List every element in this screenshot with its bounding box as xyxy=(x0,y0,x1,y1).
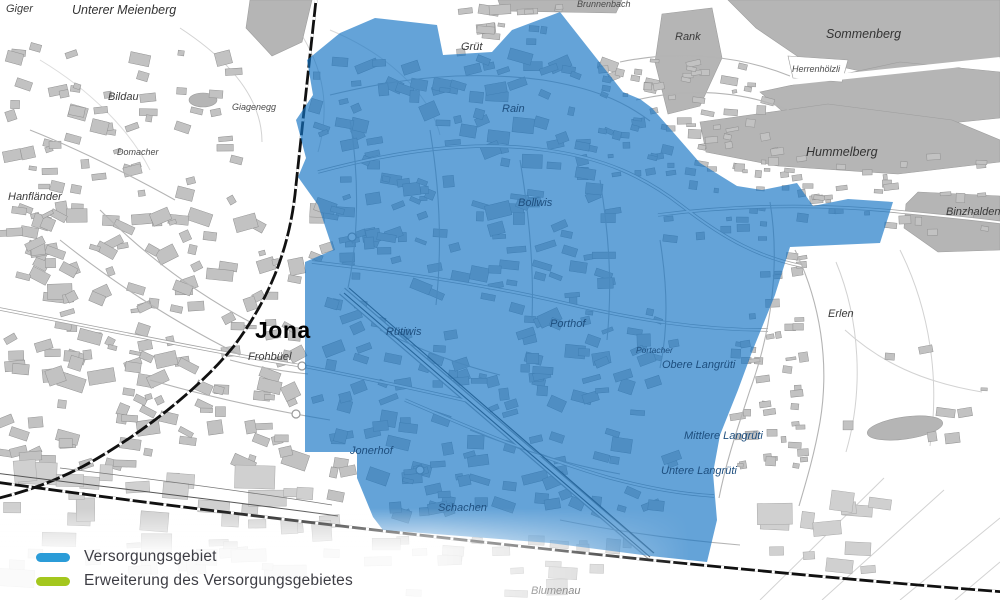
building xyxy=(788,442,801,448)
building xyxy=(945,432,961,444)
building xyxy=(687,124,696,127)
map-label-jona: Jona xyxy=(255,317,311,343)
building xyxy=(254,423,272,430)
map-label-portacher: Portacher xyxy=(636,345,674,355)
building xyxy=(885,353,895,360)
erweiterung-label: Erweiterung des Versorgungsgebietes xyxy=(84,572,353,590)
building xyxy=(125,361,141,373)
building xyxy=(825,558,853,574)
building xyxy=(781,436,786,442)
legend: Versorgungsgebiet Erweiterung des Versor… xyxy=(36,548,353,590)
building xyxy=(489,4,511,15)
building xyxy=(759,401,771,408)
building xyxy=(59,439,72,448)
building xyxy=(803,551,815,559)
building xyxy=(723,134,731,140)
building xyxy=(688,129,701,139)
building xyxy=(766,456,777,466)
building xyxy=(524,9,533,14)
building xyxy=(218,136,232,142)
building xyxy=(957,407,972,418)
building xyxy=(644,83,652,90)
building xyxy=(215,407,225,417)
building xyxy=(826,199,831,203)
building xyxy=(114,460,137,467)
building xyxy=(511,568,524,575)
building xyxy=(976,160,987,164)
building xyxy=(829,490,854,512)
map-label-obere-langr-ti: Obere Langrüti xyxy=(662,359,736,371)
map-label-erlen: Erlen xyxy=(828,308,854,320)
building xyxy=(217,144,233,151)
building xyxy=(545,561,561,567)
building xyxy=(477,26,495,35)
building xyxy=(179,230,192,243)
building xyxy=(190,107,203,115)
map-label-schachen: Schachen xyxy=(438,502,487,514)
building xyxy=(234,465,275,489)
building xyxy=(653,82,665,90)
building xyxy=(836,164,845,170)
building xyxy=(296,487,313,500)
building xyxy=(784,168,794,173)
building xyxy=(725,141,733,149)
building xyxy=(782,365,792,373)
building xyxy=(6,228,22,237)
building xyxy=(275,435,289,442)
building xyxy=(121,415,137,423)
map-label-untere-langr-ti: Untere Langrüti xyxy=(661,465,737,477)
building xyxy=(732,89,737,93)
building xyxy=(12,363,29,375)
building xyxy=(329,467,338,478)
building xyxy=(140,93,156,103)
building xyxy=(207,420,223,436)
building xyxy=(16,272,31,281)
building xyxy=(978,193,986,197)
building xyxy=(763,408,776,415)
building xyxy=(748,83,756,87)
map-label-sommenberg: Sommenberg xyxy=(826,27,901,41)
map-canvas[interactable]: GigerUnterer MeienbergBildauGiageneggDom… xyxy=(0,0,1000,600)
building xyxy=(188,301,205,311)
building xyxy=(800,457,808,462)
map-label-hanfl-nder: Hanfländer xyxy=(8,191,63,203)
building xyxy=(191,261,203,272)
building xyxy=(981,226,989,232)
map-label-unterer-meienberg: Unterer Meienberg xyxy=(72,3,176,17)
map-label-bollwis: Bollwis xyxy=(518,197,553,209)
building xyxy=(288,257,306,276)
building xyxy=(775,331,781,338)
building xyxy=(981,388,988,391)
building xyxy=(590,564,604,573)
building xyxy=(927,229,937,235)
building xyxy=(186,177,196,185)
building xyxy=(65,50,78,59)
building xyxy=(59,89,69,98)
building xyxy=(174,121,191,134)
building xyxy=(8,351,23,361)
building xyxy=(634,69,642,75)
building xyxy=(108,344,117,350)
building xyxy=(136,419,160,437)
building xyxy=(94,106,108,114)
map-label-binzhalden: Binzhalden xyxy=(946,206,1000,218)
building xyxy=(140,405,157,418)
building xyxy=(206,268,233,282)
building xyxy=(756,375,770,383)
building xyxy=(231,322,244,330)
map-label-rain: Rain xyxy=(502,103,525,115)
building xyxy=(412,548,427,556)
building xyxy=(187,207,213,227)
building xyxy=(372,538,400,550)
building xyxy=(936,407,956,418)
building xyxy=(233,213,258,233)
building xyxy=(744,86,752,92)
building xyxy=(940,192,951,196)
building xyxy=(650,59,659,63)
building xyxy=(175,186,194,201)
building xyxy=(245,420,257,434)
building xyxy=(90,119,109,136)
building xyxy=(145,393,153,400)
building xyxy=(861,565,876,574)
building xyxy=(927,431,937,442)
building xyxy=(327,490,345,503)
building xyxy=(749,358,760,363)
building xyxy=(713,125,720,130)
building xyxy=(81,159,90,168)
building xyxy=(0,568,35,587)
building xyxy=(757,105,766,114)
building xyxy=(738,63,748,70)
building xyxy=(705,136,718,143)
legend-item-versorgungsgebiet: Versorgungsgebiet xyxy=(36,548,353,566)
building xyxy=(83,350,92,360)
building xyxy=(505,590,528,597)
building xyxy=(214,50,232,67)
map-label-r-tiwis: Rütiwis xyxy=(386,326,422,338)
building xyxy=(803,184,813,189)
building xyxy=(631,75,640,82)
building xyxy=(555,4,563,9)
map-label-porthof: Porthof xyxy=(550,318,586,330)
building xyxy=(70,184,81,194)
building xyxy=(760,132,770,141)
building xyxy=(843,421,853,430)
building xyxy=(746,119,756,127)
building xyxy=(42,532,76,547)
building xyxy=(154,350,178,368)
building xyxy=(188,244,198,254)
building xyxy=(136,71,149,82)
building xyxy=(862,170,872,176)
building xyxy=(249,490,287,506)
building xyxy=(129,52,151,67)
versorgungsgebiet-swatch-icon xyxy=(36,553,70,562)
building xyxy=(29,166,37,171)
building xyxy=(200,408,212,413)
building xyxy=(498,23,505,27)
building xyxy=(770,547,784,556)
building xyxy=(227,195,237,205)
building xyxy=(2,148,22,162)
map-label-rank: Rank xyxy=(675,31,701,43)
versorgungsgebiet-label: Versorgungsgebiet xyxy=(84,548,217,566)
building xyxy=(28,416,43,428)
building xyxy=(797,448,808,456)
building xyxy=(28,266,50,285)
building xyxy=(66,209,87,223)
legend-item-erweiterung: Erweiterung des Versorgungsgebietes xyxy=(36,572,353,590)
building xyxy=(899,216,911,225)
building xyxy=(209,90,223,98)
map-label-bildau: Bildau xyxy=(108,91,139,103)
building xyxy=(60,308,75,316)
building xyxy=(900,161,907,168)
building xyxy=(45,258,55,267)
building xyxy=(761,160,766,164)
building xyxy=(795,317,804,321)
building xyxy=(137,301,152,313)
building xyxy=(956,193,965,203)
building xyxy=(724,109,738,116)
building xyxy=(874,189,883,193)
building xyxy=(442,545,464,556)
building xyxy=(798,352,808,363)
building xyxy=(144,448,153,456)
building xyxy=(77,328,102,345)
building xyxy=(743,170,748,173)
building xyxy=(162,482,188,500)
building xyxy=(92,173,107,180)
building xyxy=(15,78,33,92)
building xyxy=(701,110,715,117)
building xyxy=(800,511,815,529)
building xyxy=(76,498,95,521)
building xyxy=(11,100,20,108)
building xyxy=(755,170,762,178)
building xyxy=(836,185,848,191)
building xyxy=(123,388,135,396)
building xyxy=(915,217,922,225)
building xyxy=(252,433,270,447)
building xyxy=(743,409,750,416)
building xyxy=(406,589,422,596)
building xyxy=(13,459,37,482)
building xyxy=(458,8,473,15)
building xyxy=(730,412,746,421)
building xyxy=(138,339,153,351)
building xyxy=(280,382,300,402)
building xyxy=(248,520,266,529)
building xyxy=(4,502,21,512)
building xyxy=(792,174,802,181)
building xyxy=(138,190,145,197)
building xyxy=(786,357,796,361)
building xyxy=(87,368,115,386)
erweiterung-swatch-icon xyxy=(36,577,70,586)
map-label-jonerhof: Jonerhof xyxy=(349,445,394,457)
building xyxy=(146,115,153,122)
building xyxy=(45,349,61,357)
versorgungsgebiet-map[interactable]: GigerUnterer MeienbergBildauGiageneggDom… xyxy=(0,0,1000,600)
building xyxy=(225,68,242,76)
building xyxy=(146,369,169,388)
map-label-mittlere-langr-ti: Mittlere Langrüti xyxy=(684,430,763,442)
building xyxy=(793,324,804,331)
building xyxy=(927,153,941,160)
building xyxy=(766,334,774,340)
building xyxy=(29,42,42,52)
building xyxy=(790,389,803,397)
building xyxy=(791,403,799,410)
building xyxy=(668,95,675,100)
map-label-gr-t: Grüt xyxy=(461,41,483,53)
building xyxy=(768,157,778,165)
building xyxy=(203,231,217,241)
building xyxy=(720,75,738,85)
building xyxy=(737,463,743,467)
building xyxy=(57,400,66,409)
building xyxy=(492,547,510,556)
building xyxy=(767,429,777,436)
building xyxy=(796,425,805,429)
building xyxy=(757,503,792,525)
map-label-herrenh-lzli: Herrenhölzli xyxy=(792,64,841,74)
map-label-brunnenbach: Brunnenbach xyxy=(577,0,631,9)
map-label-giger: Giger xyxy=(6,3,34,15)
building xyxy=(264,394,274,400)
building xyxy=(764,168,770,171)
building xyxy=(364,557,391,567)
building xyxy=(883,174,888,180)
building xyxy=(288,275,302,284)
map-label-hummelberg: Hummelberg xyxy=(806,145,878,159)
building xyxy=(39,184,50,189)
building xyxy=(677,118,691,125)
map-label-domacher: Domacher xyxy=(117,147,160,157)
building xyxy=(813,520,842,537)
building xyxy=(178,50,185,56)
building xyxy=(548,566,577,579)
building xyxy=(126,282,145,295)
building xyxy=(176,87,186,94)
building xyxy=(259,250,266,256)
building xyxy=(210,108,221,117)
building xyxy=(4,333,18,345)
building xyxy=(140,511,169,532)
map-label-frohb-el: Frohbüel xyxy=(248,351,292,363)
building xyxy=(230,155,243,165)
building xyxy=(154,395,164,405)
building xyxy=(42,168,58,175)
map-label-giagenegg: Giagenegg xyxy=(232,102,276,112)
building xyxy=(131,213,151,225)
building xyxy=(64,133,81,144)
building xyxy=(125,122,139,132)
building xyxy=(793,463,800,469)
building xyxy=(20,146,36,160)
building xyxy=(179,436,196,446)
building xyxy=(845,542,871,556)
building xyxy=(9,427,29,442)
building xyxy=(5,109,17,122)
building xyxy=(170,305,183,314)
map-label-blumenau: Blumenau xyxy=(531,585,581,597)
